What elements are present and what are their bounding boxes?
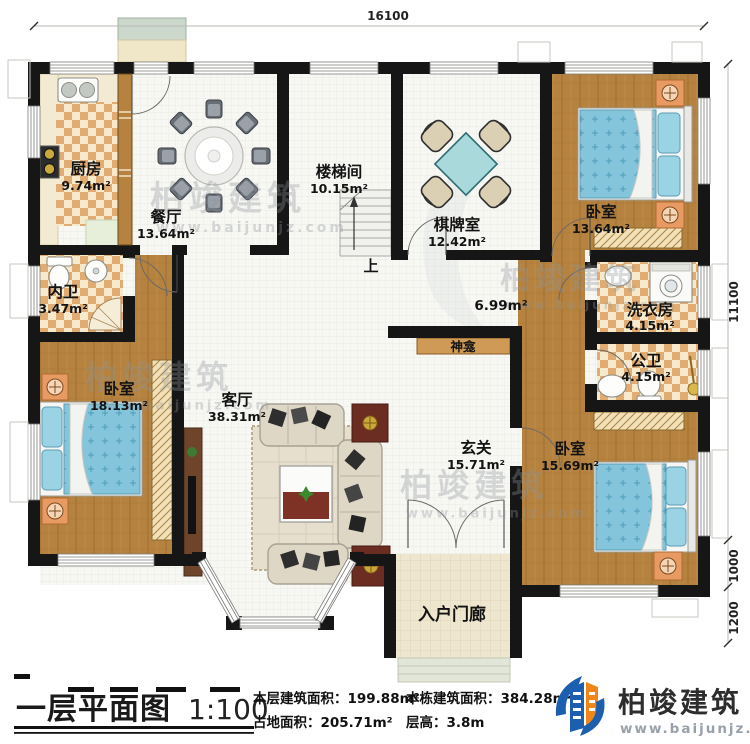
room-area-bedroom-left: 18.13m² — [90, 398, 148, 413]
pillow — [42, 407, 62, 447]
rear-landing-upper — [118, 18, 186, 40]
room-area-foyer: 15.71m² — [447, 457, 505, 472]
room-name-stairwell: 楼梯间 — [316, 162, 363, 181]
pillow — [666, 508, 686, 546]
stat-total-area: 本栋建筑面积：384.28m² — [406, 690, 573, 707]
room-area-dining: 13.64m² — [137, 226, 195, 241]
dim-right-step: 1000 — [727, 549, 741, 582]
porch-label: 入户门廊 — [418, 604, 486, 625]
window — [698, 98, 710, 184]
pillow — [658, 156, 680, 196]
rear-landing-lower — [118, 40, 186, 62]
dim-right-porch: 1200 — [727, 601, 741, 634]
room-area-laundry: 4.15m² — [625, 318, 674, 333]
window — [28, 424, 40, 500]
room-name-bedroom-tr: 卧室 — [585, 202, 616, 221]
room-area-stairwell: 10.15m² — [310, 181, 368, 196]
room-area-bathroom: 4.15m² — [621, 369, 670, 384]
floor-plan-drawing: 柏竣建筑 www.baijunjz.com — [0, 0, 750, 744]
stat-footprint: 占地面积：205.71m² — [253, 714, 393, 731]
window — [58, 554, 154, 566]
title-block: 一层平面图 1:100 本层建筑面积：199.88m² 占地面积：205.71m… — [14, 674, 750, 737]
window — [565, 62, 653, 74]
kitchen-mat — [86, 220, 118, 246]
room-area-kitchen: 9.74m² — [61, 178, 110, 193]
room-name-kitchen: 厨房 — [70, 159, 101, 178]
stat-storey-height: 层高：3.8m — [406, 714, 484, 731]
coffee-table — [280, 466, 332, 522]
window — [310, 62, 378, 74]
pillow — [666, 467, 686, 505]
floor-plan-page: 柏竣建筑 www.baijunjz.com — [0, 0, 750, 744]
drawing-title: 一层平面图 — [16, 692, 171, 727]
logo-url: www.baijunjz.com — [620, 721, 750, 737]
room-area-living: 38.31m² — [208, 409, 266, 424]
room-name-chess: 棋牌室 — [434, 215, 481, 234]
bedroom-left-nook-floor — [135, 255, 172, 342]
plant — [187, 447, 197, 457]
stairs-up-label: 上 — [363, 257, 378, 275]
room-area-bedroom-tr: 13.64m² — [572, 221, 630, 236]
stairs — [340, 190, 391, 256]
window — [28, 106, 40, 158]
kitchen-sliding-door — [118, 74, 132, 245]
window — [194, 62, 254, 74]
room-area-bedroom-br: 15.69m² — [541, 458, 599, 473]
room-name-bathroom: 公卫 — [630, 352, 662, 370]
window — [698, 266, 710, 318]
window — [430, 62, 498, 74]
room-name-ensuite: 内卫 — [47, 282, 79, 301]
stat-floor-area: 本层建筑面积：199.88m² — [253, 690, 420, 707]
window — [698, 452, 710, 536]
window — [560, 585, 658, 597]
room-name-dining: 餐厅 — [149, 207, 182, 226]
window — [50, 62, 114, 74]
porch-steps — [398, 658, 510, 682]
logo-brand: 柏竣建筑 — [618, 686, 742, 719]
window — [698, 350, 710, 396]
logo: 柏竣建筑 www.baijunjz.com — [556, 676, 750, 737]
dim-right: 11100 — [727, 281, 741, 323]
room-name-living: 客厅 — [221, 390, 253, 409]
pillow — [42, 450, 62, 490]
room-name-laundry: 洗衣房 — [627, 300, 674, 319]
shrine-label: 神龛 — [450, 339, 476, 354]
tv — [188, 476, 196, 534]
room-name-foyer: 玄关 — [460, 438, 492, 457]
corridor-area-label: 6.99m² — [474, 298, 527, 314]
dim-top: 16100 — [367, 9, 409, 23]
room-area-ensuite: 3.47m² — [38, 301, 87, 316]
window — [134, 62, 168, 74]
pillow — [658, 113, 680, 153]
room-area-chess: 12.42m² — [428, 234, 486, 249]
room-name-bedroom-left: 卧室 — [103, 379, 134, 398]
logo-icon — [556, 676, 605, 736]
wardrobe — [594, 412, 684, 430]
room-name-bedroom-br: 卧室 — [554, 439, 585, 458]
